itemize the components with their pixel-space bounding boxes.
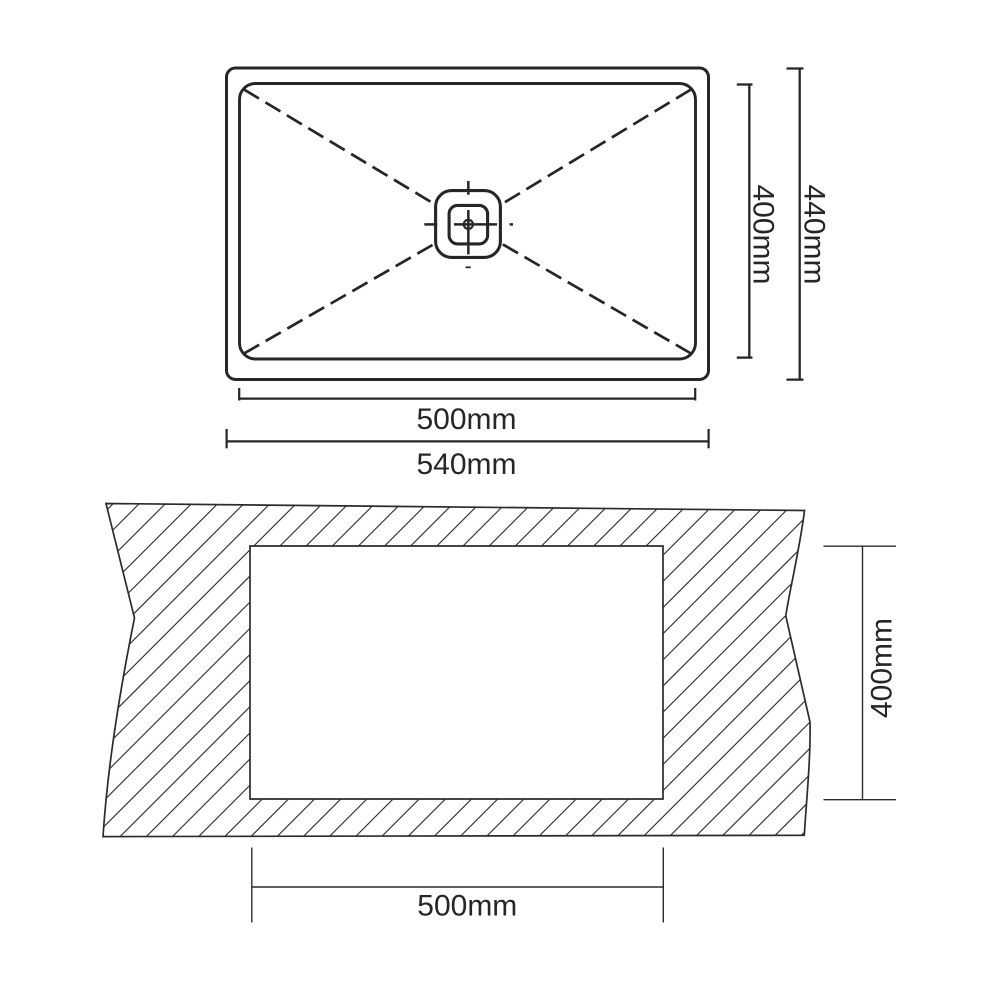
svg-text:540mm: 540mm [416,448,516,481]
svg-text:400mm: 400mm [747,184,780,284]
svg-text:440mm: 440mm [798,184,831,284]
svg-text:500mm: 500mm [416,403,516,436]
svg-text:500mm: 500mm [417,890,517,923]
svg-text:400mm: 400mm [866,618,899,718]
